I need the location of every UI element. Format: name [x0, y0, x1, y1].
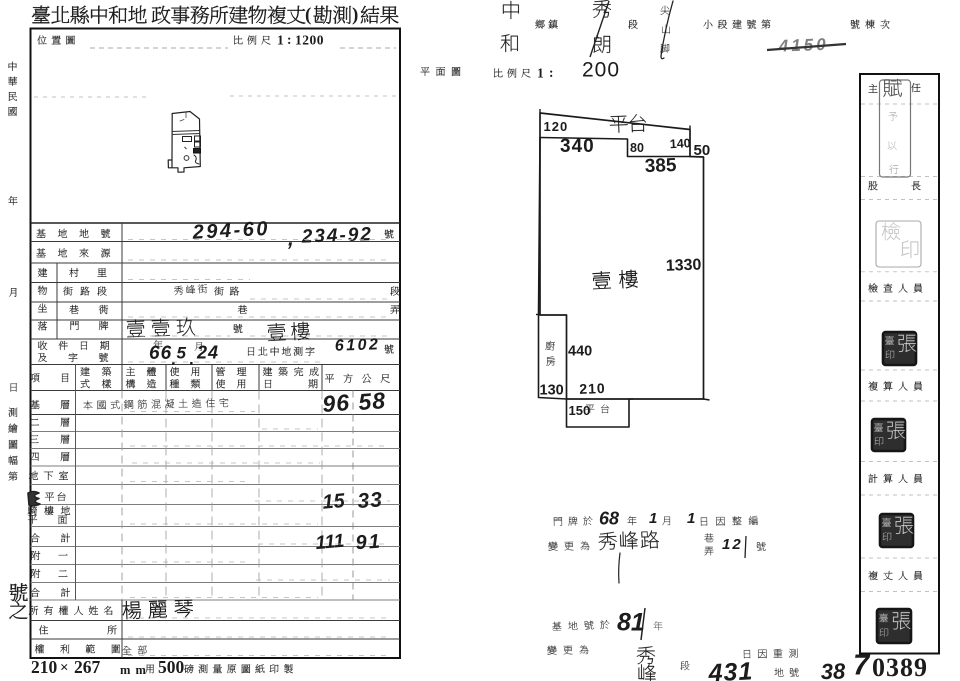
svg-text:385: 385: [644, 155, 677, 177]
svg-text:66: 66: [149, 343, 172, 364]
svg-text:210: 210: [579, 380, 606, 397]
svg-text:50: 50: [694, 142, 711, 159]
svg-text:500: 500: [158, 657, 185, 677]
svg-text:.: .: [189, 350, 194, 369]
svg-text:150: 150: [569, 403, 591, 418]
svg-text:1: 1: [277, 33, 284, 48]
svg-text:.: .: [171, 350, 176, 369]
svg-text:1330: 1330: [666, 257, 702, 275]
svg-text:24: 24: [196, 342, 219, 362]
svg-text:96: 96: [322, 389, 351, 417]
svg-text:140: 140: [669, 136, 691, 151]
svg-text:1: 1: [649, 510, 657, 527]
svg-text:200: 200: [582, 59, 620, 82]
svg-text:81: 81: [617, 609, 645, 637]
svg-text:120: 120: [544, 119, 569, 134]
svg-text:7: 7: [853, 650, 871, 681]
svg-text:111: 111: [315, 531, 346, 554]
svg-text:1200: 1200: [295, 33, 324, 48]
svg-text:130: 130: [540, 383, 564, 399]
svg-text:68: 68: [599, 508, 619, 528]
svg-text:×: ×: [60, 660, 69, 676]
svg-text:12: 12: [722, 536, 743, 553]
svg-text:5: 5: [177, 344, 187, 363]
svg-text:6102: 6102: [335, 336, 381, 355]
svg-text::: :: [549, 65, 554, 80]
svg-text:15: 15: [322, 490, 347, 514]
svg-text:0389: 0389: [872, 653, 928, 681]
svg-text:m m: m m: [120, 663, 147, 677]
svg-text:): ): [352, 5, 358, 26]
svg-text:440: 440: [568, 344, 592, 360]
svg-text:234-92: 234-92: [300, 224, 373, 248]
svg-text:431: 431: [707, 657, 754, 681]
svg-text:91: 91: [355, 531, 383, 555]
svg-text:210: 210: [31, 657, 58, 677]
svg-text::: :: [287, 32, 292, 47]
svg-text:38: 38: [820, 658, 846, 681]
svg-text:1: 1: [537, 66, 544, 81]
svg-text:,: ,: [287, 228, 294, 251]
svg-text:267: 267: [74, 657, 101, 677]
svg-text:340: 340: [560, 136, 595, 157]
svg-text:(: (: [305, 5, 311, 26]
svg-text:294-60: 294-60: [191, 218, 270, 244]
svg-text:58: 58: [358, 387, 387, 415]
svg-text:1: 1: [687, 510, 695, 527]
svg-text:80: 80: [630, 141, 644, 155]
